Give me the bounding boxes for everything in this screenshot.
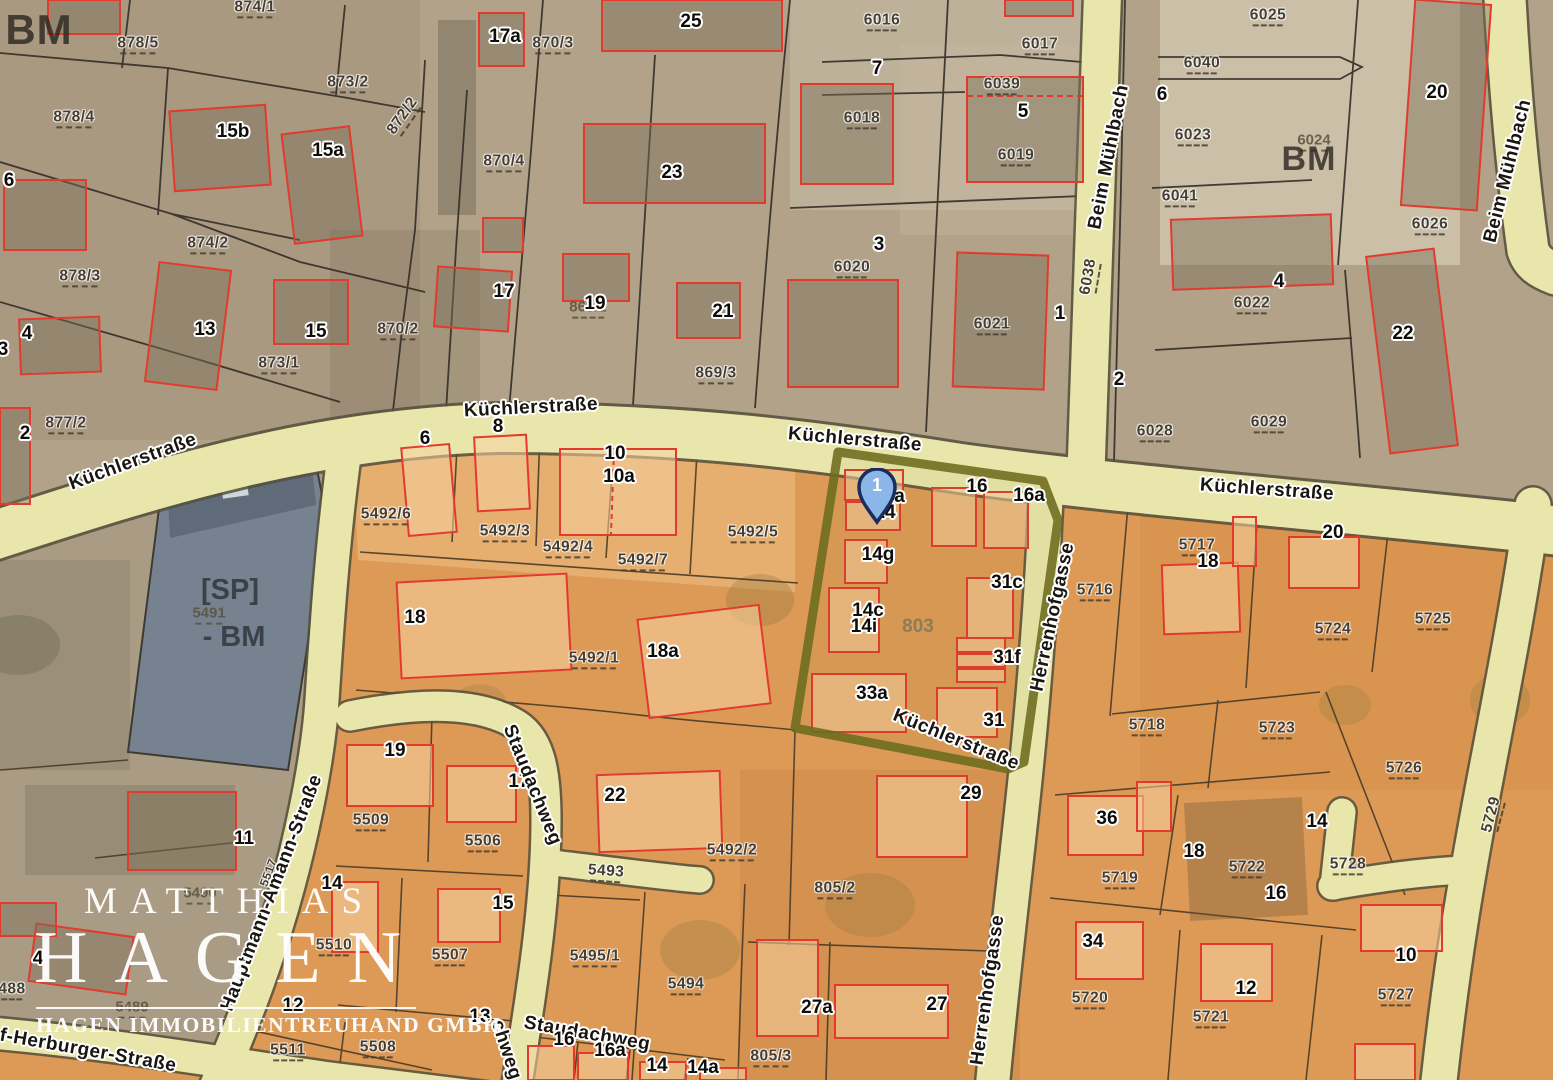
parcel-number-label: 878/3 (59, 268, 100, 287)
house-number-label: 6 (420, 429, 431, 449)
street-name-label: Hauptmann-Amann-Straße (218, 772, 327, 1014)
house-number-label: 15 (492, 894, 513, 914)
parcel-number-label: 6022 (1234, 295, 1270, 314)
parcel-number-label: 5726 (1386, 760, 1422, 779)
street-name-label: Küchlerstraße (787, 424, 923, 456)
house-number-label: 15a (312, 141, 344, 161)
house-number-label: 27 (926, 995, 947, 1015)
parcel-number-label: 5491 (192, 606, 225, 625)
parcel-number-label: 5722 (1229, 859, 1265, 878)
house-number-label: 36 (1096, 809, 1117, 829)
street-name-label: Beim Mühlbach (1085, 83, 1133, 231)
parcel-number-label: 805/2 (814, 880, 855, 899)
zone-label: BM (5, 8, 72, 52)
zone-label: BM (1282, 142, 1337, 178)
parcel-number-label: 5725 (1415, 611, 1451, 630)
parcel-number-label: 6016 (864, 12, 900, 31)
house-number-label: 16 (553, 1030, 574, 1050)
parcel-number-label: 5510 (316, 937, 352, 956)
parcel-number-label: 6019 (998, 147, 1034, 166)
parcel-number-label: 803 (902, 617, 934, 637)
house-number-label: 2 (1114, 370, 1125, 390)
parcel-number-label: 6023 (1175, 127, 1211, 146)
parcel-number-label: 870/2 (377, 321, 418, 340)
street-name-label: Herrenhofgasse (1027, 541, 1078, 694)
parcel-number-label: 870/4 (483, 153, 524, 172)
house-number-label: 12 (282, 996, 303, 1016)
parcel-number-label: 6025 (1250, 7, 1286, 26)
house-number-label: 3 (874, 235, 885, 255)
parcel-number-label: 5728 (1330, 856, 1366, 875)
house-number-label: 34 (1082, 932, 1103, 952)
house-number-label: 27a (801, 998, 833, 1018)
parcel-number-label: 5724 (1315, 621, 1351, 640)
house-number-label: 14i (851, 617, 877, 637)
parcel-number-label: 6028 (1137, 423, 1173, 442)
parcel-number-label: 6020 (834, 259, 870, 278)
house-number-label: 20 (1322, 523, 1343, 543)
parcel-number-label: 6021 (974, 316, 1010, 335)
parcel-number-label: 6029 (1251, 414, 1287, 433)
parcel-number-label: 5721 (1193, 1009, 1229, 1028)
house-number-label: 7 (872, 59, 883, 79)
cadastral-map[interactable]: BM874/1878/5873/2872/2878/415b15a6874/21… (0, 0, 1553, 1080)
map-pin[interactable]: 1 (857, 468, 897, 526)
parcel-number-label: 5727 (1378, 987, 1414, 1006)
house-number-label: 17 (508, 772, 529, 792)
parcel-number-label: 6041 (1162, 188, 1198, 207)
parcel-number-label: 5494 (668, 976, 704, 995)
house-number-label: 29 (960, 784, 981, 804)
house-number-label: 15b (217, 122, 250, 142)
parcel-number-label: 878/5 (117, 35, 158, 54)
parcel-number-label: 6017 (1022, 36, 1058, 55)
street-name-label: Küchlerstraße (1199, 475, 1334, 504)
house-number-label: 33a (856, 684, 888, 704)
house-number-label: 14 (646, 1056, 667, 1076)
parcel-number-label: 5720 (1072, 990, 1108, 1009)
house-number-label: 4 (33, 949, 44, 969)
parcel-number-label: 6040 (1184, 55, 1220, 74)
parcel-number-label: 5493 (587, 862, 625, 884)
house-number-label: 22 (604, 786, 625, 806)
parcel-number-label: 805/3 (750, 1048, 791, 1067)
house-number-label: 16 (966, 477, 987, 497)
parcel-number-label: 5492/4 (543, 539, 593, 558)
house-number-label: 31f (993, 648, 1020, 668)
house-number-label: 14a (687, 1058, 719, 1078)
parcel-number-label: 5509 (353, 812, 389, 831)
parcel-number-label: 6024 (1297, 133, 1330, 152)
parcel-number-label: 874/2 (187, 235, 228, 254)
street-name-label: Küchlerstraße (66, 430, 199, 495)
street-name-label: Beim Mühlbach (1481, 97, 1536, 244)
house-number-label: 1 (1055, 304, 1066, 324)
parcel-number-label: 5490 (183, 886, 216, 905)
parcel-number-label: 6039 (984, 76, 1020, 95)
parcel-number-label: 6018 (844, 110, 880, 129)
house-number-label: 18 (404, 608, 425, 628)
parcel-number-label: 5492/1 (569, 650, 619, 669)
street-name-label: Küchlerstraße (890, 706, 1022, 775)
house-number-label: 17 (493, 282, 514, 302)
house-number-label: 16a (594, 1041, 626, 1061)
pin-number: 1 (857, 475, 897, 496)
parcel-number-label: 5517 (258, 857, 282, 889)
parcel-number-label: 5719 (1102, 870, 1138, 889)
zone-label: [SP] (201, 575, 259, 605)
parcel-number-label: 5729 (1479, 795, 1507, 835)
parcel-number-label: 870/3 (532, 35, 573, 54)
parcel-number-label: 5492/3 (480, 523, 530, 542)
house-number-label: 14c (852, 601, 884, 621)
parcel-number-label: 878/4 (53, 109, 94, 128)
house-number-label: 6 (1157, 85, 1168, 105)
house-number-label: 17a (489, 27, 521, 47)
parcel-number-label: 5511 (270, 1042, 306, 1061)
house-number-label: 25 (680, 12, 701, 32)
parcel-number-label: 872/2 (384, 95, 423, 140)
house-number-label: 4 (22, 324, 33, 344)
parcel-number-label: 5495/1 (570, 948, 620, 967)
parcel-number-label: 5492/5 (728, 524, 778, 543)
house-number-label: 21 (712, 302, 733, 322)
parcel-number-label: 869/3 (695, 365, 736, 384)
house-number-label: 18 (1197, 552, 1218, 572)
map-labels-layer: BM874/1878/5873/2872/2878/415b15a6874/21… (0, 0, 1553, 1080)
house-number-label: 18 (1183, 842, 1204, 862)
house-number-label: 31 (983, 711, 1004, 731)
house-number-label: 11 (234, 829, 254, 849)
house-number-label: 20 (1426, 83, 1447, 103)
zone-label: - BM (203, 622, 266, 652)
parcel-number-label: 5489 (115, 1000, 148, 1019)
house-number-label: 14g (862, 545, 895, 565)
parcel-number-label: 5507 (432, 947, 468, 966)
house-number-label: 16a (1013, 486, 1045, 506)
parcel-number-label: 5492/6 (361, 506, 411, 525)
house-number-label: 2 (20, 424, 31, 444)
parcel-number-label: 873/2 (327, 74, 368, 93)
house-number-label: 10 (1395, 946, 1416, 966)
house-number-label: 16 (1265, 884, 1286, 904)
parcel-number-label: 5492/7 (618, 552, 668, 571)
parcel-number-label: 874/1 (234, 0, 275, 19)
street-name-label: f-Herburger-Straße (0, 1026, 178, 1077)
house-number-label: 8 (493, 417, 504, 437)
parcel-number-label: 5716 (1077, 582, 1113, 601)
street-name-label: Staudachweg (522, 1013, 652, 1055)
street-name-label: Herrenhofgasse (968, 914, 1009, 1067)
house-number-label: 19 (584, 294, 605, 314)
house-number-label: 6 (4, 171, 15, 191)
street-name-label: Küchlerstraße (463, 395, 598, 422)
parcel-number-label: 869/2 (569, 300, 607, 319)
parcel-number-label: 5492/2 (707, 842, 757, 861)
house-number-label: 3 (0, 340, 8, 360)
house-number-label: 4 (1274, 272, 1285, 292)
house-number-label: 10 (604, 444, 625, 464)
house-number-label: 18a (647, 642, 679, 662)
house-number-label: 13 (469, 1007, 490, 1027)
house-number-label: 19 (384, 741, 405, 761)
parcel-number-label: 6026 (1412, 216, 1448, 235)
house-number-label: 12 (1235, 979, 1256, 999)
house-number-label: 14 (321, 874, 342, 894)
parcel-number-label: 877/2 (45, 415, 86, 434)
house-number-label: 31c (991, 573, 1023, 593)
house-number-label: 23 (661, 163, 682, 183)
parcel-number-label: 5506 (465, 833, 501, 852)
house-number-label: 15 (305, 322, 326, 342)
parcel-number-label: 5718 (1129, 717, 1165, 736)
house-number-label: 5 (1018, 102, 1029, 122)
parcel-number-label: 873/1 (258, 355, 299, 374)
parcel-number-label: 488 (0, 981, 26, 1000)
street-name-label: Staudachweg (499, 722, 565, 848)
house-number-label: 22 (1392, 324, 1413, 344)
parcel-number-label: 5717 (1179, 537, 1215, 556)
parcel-number-label: 5508 (360, 1039, 396, 1058)
house-number-label: 14 (1306, 812, 1327, 832)
house-number-label: 10a (603, 467, 635, 487)
parcel-number-label: 5723 (1259, 720, 1295, 739)
parcel-number-label: 6038 (1077, 257, 1102, 296)
house-number-label: 13 (194, 320, 215, 340)
street-name-label: chweg (487, 1018, 525, 1080)
